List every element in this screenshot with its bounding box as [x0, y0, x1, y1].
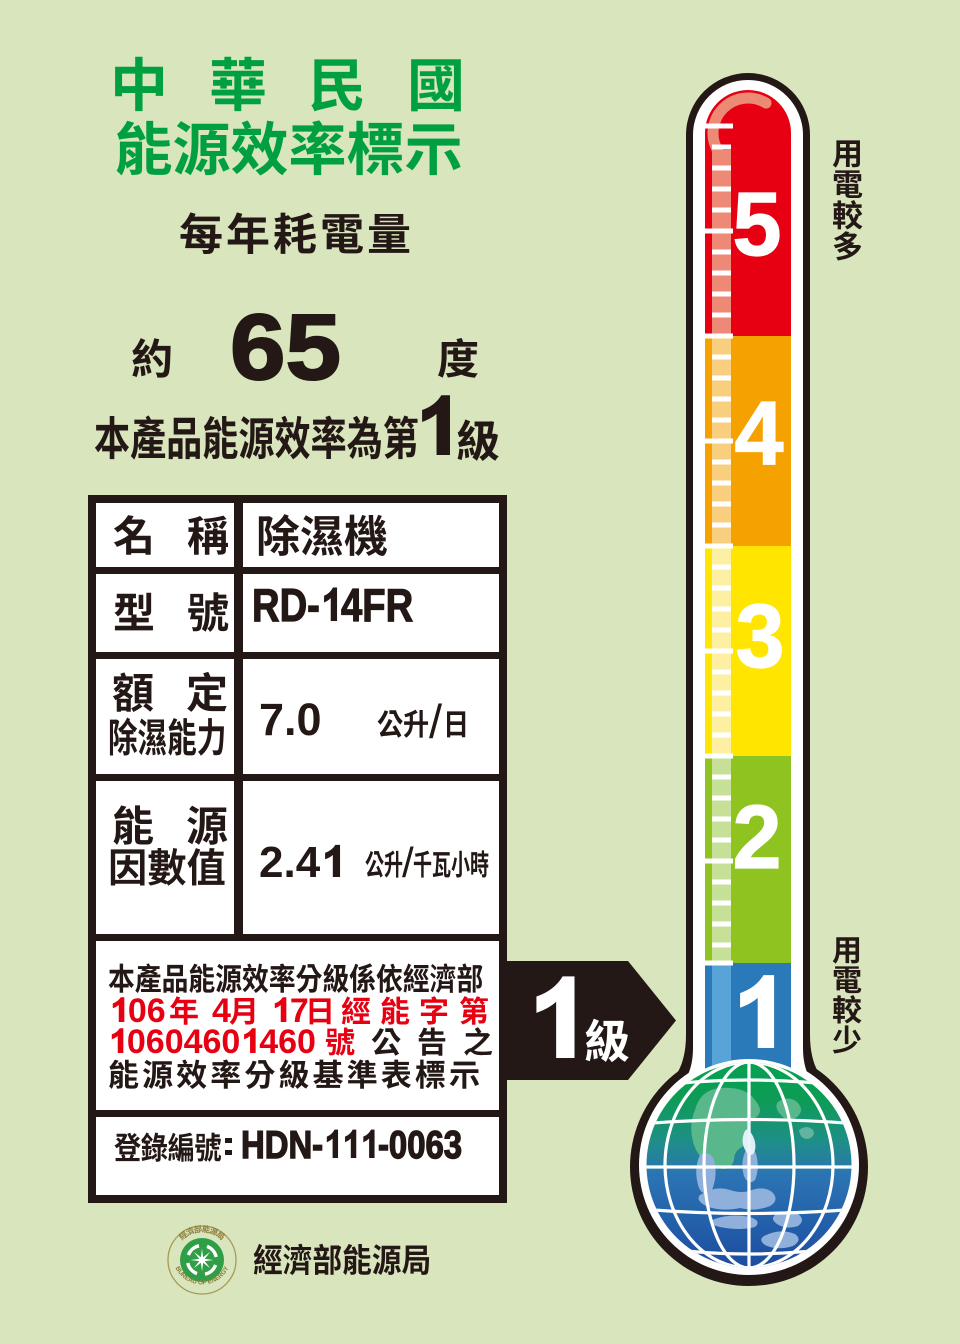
svg-text:7.0: 7.0	[259, 694, 322, 745]
svg-text:4: 4	[735, 384, 784, 484]
svg-text:460: 460	[259, 1023, 316, 1061]
svg-text:2: 2	[733, 788, 782, 888]
svg-text:-0063: -0063	[378, 1122, 462, 1166]
svg-text:HDN-: HDN-	[241, 1122, 323, 1166]
svg-text:5: 5	[733, 175, 782, 275]
svg-text:RD-: RD-	[252, 580, 320, 631]
svg-text:060460: 060460	[127, 1023, 240, 1061]
svg-text:/: /	[402, 839, 414, 886]
svg-text:4FR: 4FR	[341, 580, 413, 631]
svg-text:3: 3	[736, 587, 785, 687]
svg-text:2.4: 2.4	[259, 838, 321, 887]
svg-text:65: 65	[230, 295, 341, 399]
svg-text:/: /	[429, 695, 443, 748]
